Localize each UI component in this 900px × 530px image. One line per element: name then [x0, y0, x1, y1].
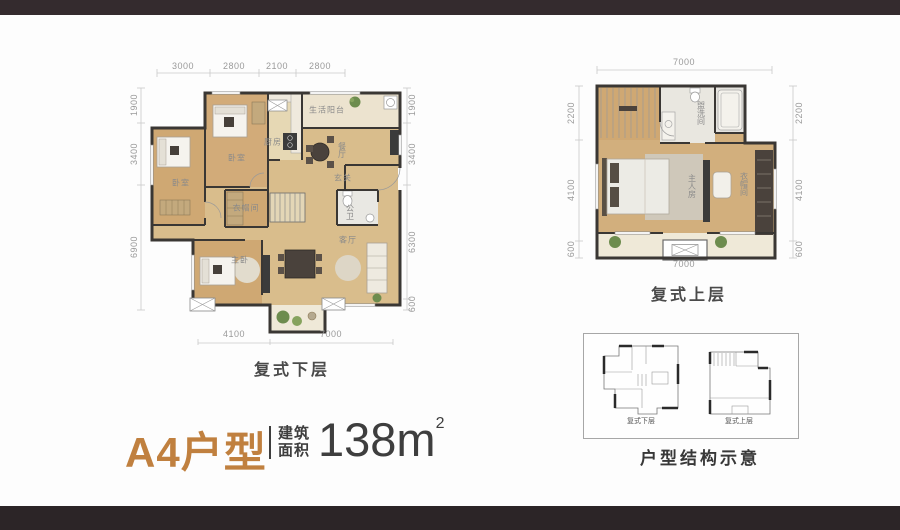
area-value: 138m2 — [318, 412, 444, 467]
dim-label: 2800 — [300, 60, 340, 72]
room-label: 主人房 — [687, 174, 698, 198]
title-divider — [269, 426, 271, 459]
dim-label: 6900 — [128, 227, 140, 267]
bottom-frame-bar — [0, 506, 900, 530]
unit-title: A4户型 — [125, 419, 267, 480]
room-label: 衣帽间 — [233, 203, 260, 214]
dim-label: 4100 — [214, 328, 254, 340]
room-label: 主卧 — [231, 255, 249, 266]
dim-label: 7000 — [311, 328, 351, 340]
area-label-top: 建筑 — [278, 426, 310, 443]
dim-label: 600 — [565, 229, 577, 269]
dim-label: 3400 — [128, 134, 140, 174]
area-label: 建筑 面积 — [278, 426, 310, 459]
area-superscript: 2 — [436, 415, 445, 432]
room-label: 玄关 — [334, 173, 352, 184]
dim-label: 6300 — [406, 222, 418, 262]
room-label: 生活阳台 — [309, 105, 345, 116]
mini-lower-label: 复式下层 — [611, 416, 671, 426]
mini-upper-plan — [708, 350, 772, 416]
dim-label: 3400 — [406, 134, 418, 174]
dim-label: 600 — [793, 229, 805, 269]
area-label-bottom: 面积 — [278, 443, 310, 460]
dim-label: 2800 — [214, 60, 254, 72]
upper-plan-caption: 复式上层 — [609, 281, 769, 305]
floor-plan-page: 3000 2800 2100 2800 1900 3400 6900 1900 … — [0, 0, 900, 530]
room-label: 卧室 — [172, 178, 190, 189]
area-number: 138m — [318, 413, 436, 466]
dim-label: 2200 — [793, 93, 805, 133]
room-label: 衣帽间 — [739, 172, 750, 196]
mini-upper-label: 复式上层 — [709, 416, 769, 426]
dim-label: 1900 — [128, 85, 140, 125]
room-label: 卧室 — [228, 153, 246, 164]
top-frame-bar — [0, 0, 900, 15]
mini-lower-plan — [602, 344, 680, 418]
lower-plan-caption: 复式下层 — [212, 356, 372, 380]
structure-caption: 户型结构示意 — [600, 444, 800, 469]
dim-label: 600 — [406, 284, 418, 324]
room-label: 公卫 — [345, 204, 356, 220]
room-label: 餐厅 — [337, 142, 348, 158]
room-label: 厨房 — [264, 137, 282, 148]
dim-label: 1900 — [406, 85, 418, 125]
dim-label: 4100 — [793, 170, 805, 210]
dim-label: 7000 — [664, 56, 704, 68]
dim-label: 4100 — [565, 170, 577, 210]
room-label: 盥洗间 — [696, 101, 707, 125]
dim-label: 2100 — [257, 60, 297, 72]
dim-label: 3000 — [163, 60, 203, 72]
lower-floor-plan-drawing — [125, 55, 427, 345]
room-label: 客厅 — [339, 235, 357, 246]
dim-label: 7000 — [664, 258, 704, 270]
dim-label: 2200 — [565, 93, 577, 133]
upper-floor-plan-drawing — [575, 64, 800, 264]
